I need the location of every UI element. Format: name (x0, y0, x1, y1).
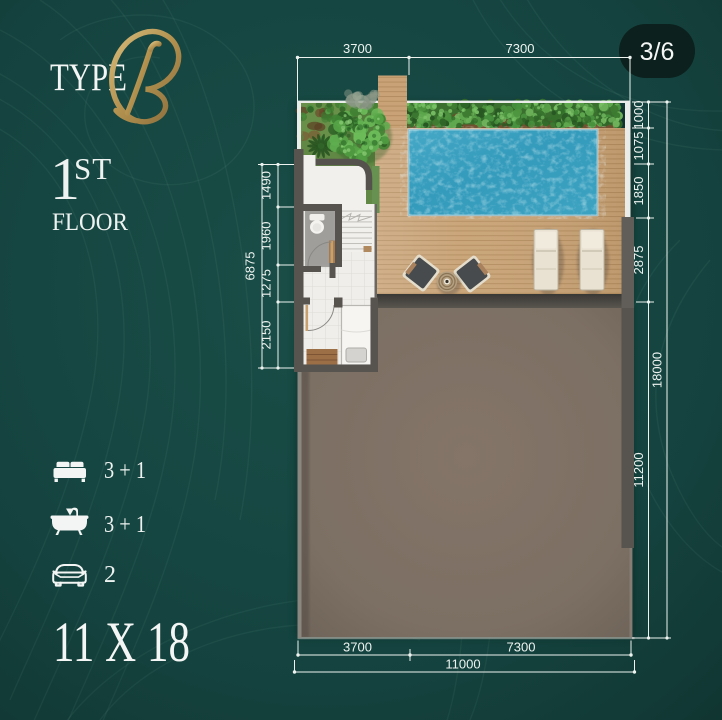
svg-text:2875: 2875 (631, 246, 646, 275)
svg-text:ST: ST (74, 151, 112, 186)
svg-text:3 + 1: 3 + 1 (104, 458, 146, 484)
svg-text:1075: 1075 (631, 132, 646, 161)
svg-text:1000: 1000 (631, 101, 646, 130)
svg-text:3700: 3700 (343, 41, 372, 56)
svg-text:7300: 7300 (507, 640, 536, 655)
svg-text:1850: 1850 (631, 177, 646, 206)
svg-text:FLOOR: FLOOR (52, 207, 128, 236)
svg-text:6875: 6875 (243, 252, 258, 281)
svg-text:3/6: 3/6 (640, 38, 675, 66)
svg-text:1490: 1490 (259, 171, 274, 200)
svg-text:11200: 11200 (631, 452, 646, 487)
svg-text:3 + 1: 3 + 1 (104, 512, 146, 538)
svg-text:2150: 2150 (259, 321, 274, 350)
svg-text:1960: 1960 (259, 222, 274, 251)
svg-text:1275: 1275 (259, 269, 274, 298)
svg-text:3700: 3700 (343, 640, 372, 655)
svg-text:18000: 18000 (650, 352, 665, 388)
svg-text:11000: 11000 (445, 657, 480, 672)
svg-text:2: 2 (104, 562, 116, 588)
svg-text:7300: 7300 (506, 41, 535, 56)
svg-text:11 X 18: 11 X 18 (53, 611, 190, 674)
